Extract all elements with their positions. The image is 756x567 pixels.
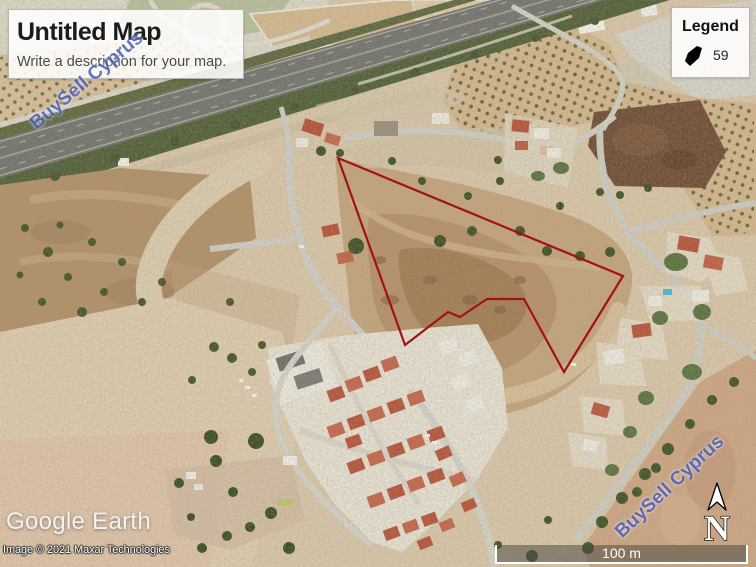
svg-text:N: N xyxy=(704,508,730,546)
